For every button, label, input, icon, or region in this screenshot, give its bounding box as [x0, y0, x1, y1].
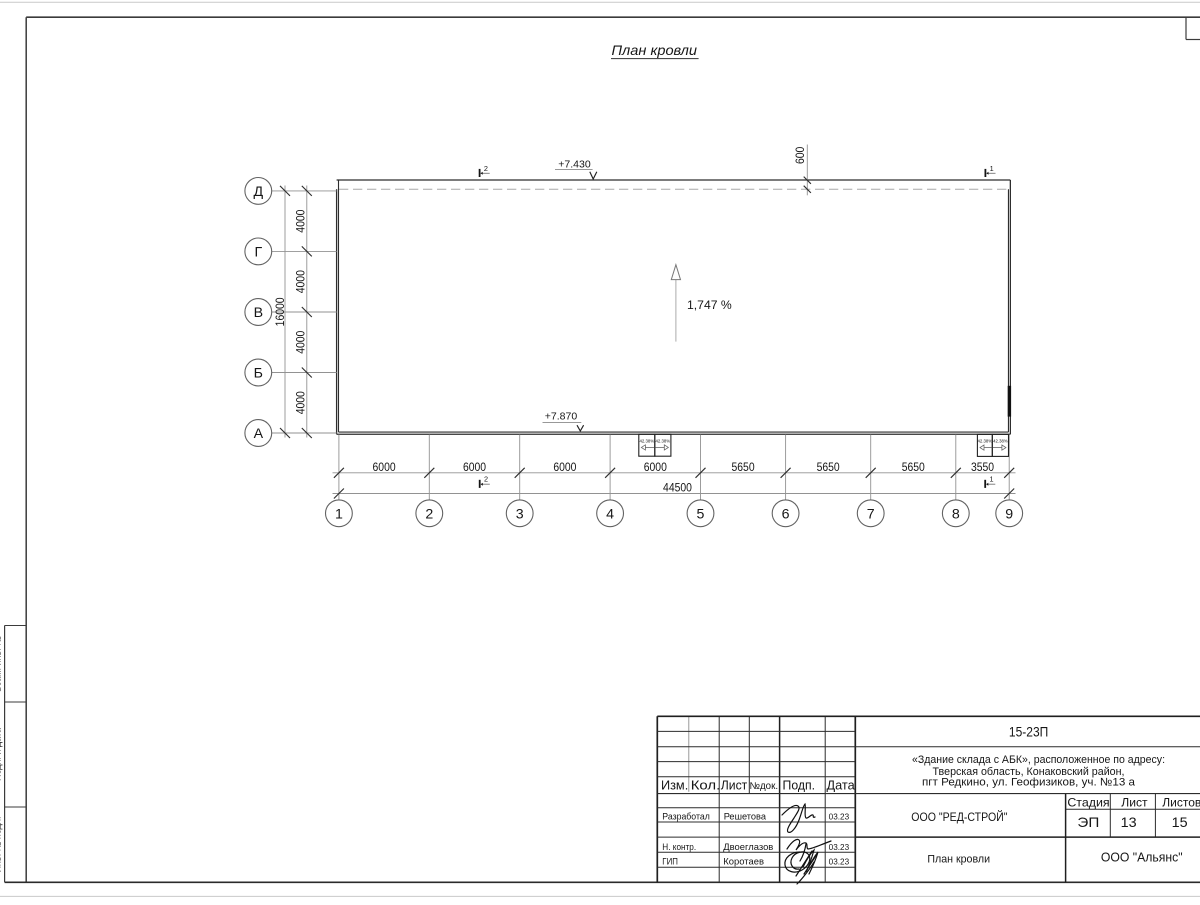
svg-text:6000: 6000: [644, 462, 667, 474]
svg-text:План кровли: План кровли: [612, 43, 698, 58]
svg-text:Лист: Лист: [721, 777, 748, 792]
svg-text:42.38%: 42.38%: [978, 438, 993, 443]
svg-text:3: 3: [516, 506, 524, 522]
svg-text:4000: 4000: [296, 270, 308, 293]
svg-text:Решетова: Решетова: [724, 811, 767, 822]
svg-text:7: 7: [867, 506, 875, 522]
svg-text:6000: 6000: [553, 462, 576, 474]
svg-text:3550: 3550: [971, 462, 994, 474]
svg-text:+7.870: +7.870: [545, 411, 578, 423]
svg-text:42.38%: 42.38%: [656, 438, 671, 443]
svg-text:6000: 6000: [373, 462, 396, 474]
svg-text:Изм.: Изм.: [661, 777, 688, 792]
svg-text:6000: 6000: [463, 462, 486, 474]
svg-text:1: 1: [989, 475, 993, 484]
svg-text:15-23П: 15-23П: [1009, 725, 1048, 740]
svg-text:Инв. № подл.: Инв. № подл.: [0, 816, 3, 872]
svg-text:42.38%: 42.38%: [640, 438, 655, 443]
svg-text:Коротаев: Коротаев: [723, 857, 764, 868]
svg-text:5650: 5650: [902, 462, 925, 474]
svg-text:Д: Д: [253, 184, 263, 200]
svg-text:В: В: [254, 305, 263, 321]
svg-text:Б: Б: [254, 366, 263, 382]
svg-text:1: 1: [335, 506, 343, 522]
svg-text:Дата: Дата: [827, 777, 856, 792]
svg-text:600: 600: [795, 147, 807, 164]
svg-text:4000: 4000: [296, 210, 308, 233]
svg-text:Листов: Листов: [1162, 796, 1200, 810]
svg-text:5650: 5650: [731, 462, 754, 474]
svg-text:42.38%: 42.38%: [993, 438, 1008, 443]
svg-text:Стадия: Стадия: [1067, 796, 1109, 810]
svg-text:5650: 5650: [817, 462, 840, 474]
svg-text:План кровли: План кровли: [927, 854, 990, 866]
svg-text:1: 1: [990, 164, 994, 173]
svg-text:ЭП: ЭП: [1077, 815, 1099, 830]
svg-text:Г: Г: [254, 244, 262, 260]
svg-text:16000: 16000: [275, 297, 287, 326]
svg-text:2: 2: [425, 506, 433, 522]
svg-text:А: А: [254, 426, 264, 442]
svg-text:44500: 44500: [663, 483, 692, 495]
svg-text:5: 5: [697, 506, 705, 522]
svg-text:Подп. и дата: Подп. и дата: [0, 728, 3, 781]
svg-text:9: 9: [1005, 506, 1013, 522]
svg-text:ООО "РЕД-СТРОЙ": ООО "РЕД-СТРОЙ": [911, 811, 1007, 824]
svg-text:Разработал: Разработал: [662, 811, 710, 822]
svg-text:Н. контр.: Н. контр.: [662, 842, 696, 853]
svg-text:13: 13: [1121, 815, 1137, 830]
svg-text:Подп.: Подп.: [783, 777, 816, 792]
svg-text:ООО "Альянс": ООО "Альянс": [1101, 850, 1183, 865]
svg-text:+7.430: +7.430: [558, 159, 591, 171]
svg-text:Двоеглазов: Двоеглазов: [723, 842, 773, 853]
svg-text:Лист: Лист: [1121, 796, 1148, 810]
svg-text:03.23: 03.23: [829, 811, 850, 821]
svg-text:ГИП: ГИП: [662, 857, 678, 868]
svg-text:Взам. инв. №: Взам. инв. №: [0, 636, 3, 692]
svg-text:Кол.: Кол.: [691, 777, 721, 792]
svg-text:03.23: 03.23: [829, 857, 850, 867]
svg-text:«Здание склада с АБК», располо: «Здание склада с АБК», расположенное по …: [912, 754, 1165, 766]
svg-text:8: 8: [952, 506, 960, 522]
svg-text:№док.: №док.: [750, 781, 779, 792]
svg-text:6: 6: [782, 506, 790, 522]
svg-text:4000: 4000: [296, 331, 308, 354]
svg-text:2: 2: [484, 164, 488, 173]
svg-text:4: 4: [606, 506, 614, 522]
svg-text:пгт Редкино, ул. Геофизиков, у: пгт Редкино, ул. Геофизиков, уч. №13 а: [922, 777, 1136, 789]
svg-text:1,747 %: 1,747 %: [687, 298, 732, 312]
svg-text:15: 15: [1172, 815, 1188, 830]
svg-text:03.23: 03.23: [829, 842, 850, 852]
svg-text:4000: 4000: [296, 391, 308, 414]
svg-text:2: 2: [484, 475, 488, 484]
